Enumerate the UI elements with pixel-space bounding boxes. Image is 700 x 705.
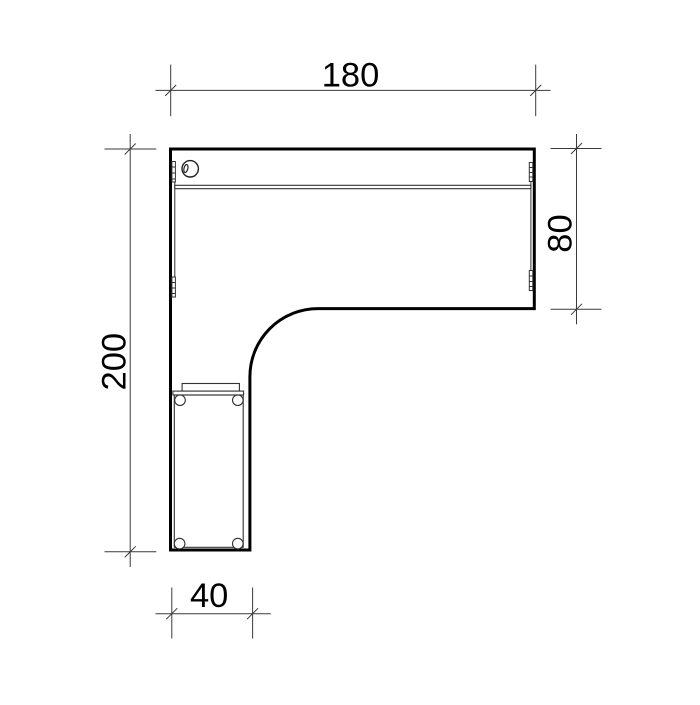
svg-text:180: 180 <box>322 57 380 95</box>
svg-text:200: 200 <box>95 333 133 391</box>
svg-text:40: 40 <box>190 577 228 615</box>
svg-text:80: 80 <box>542 214 580 252</box>
